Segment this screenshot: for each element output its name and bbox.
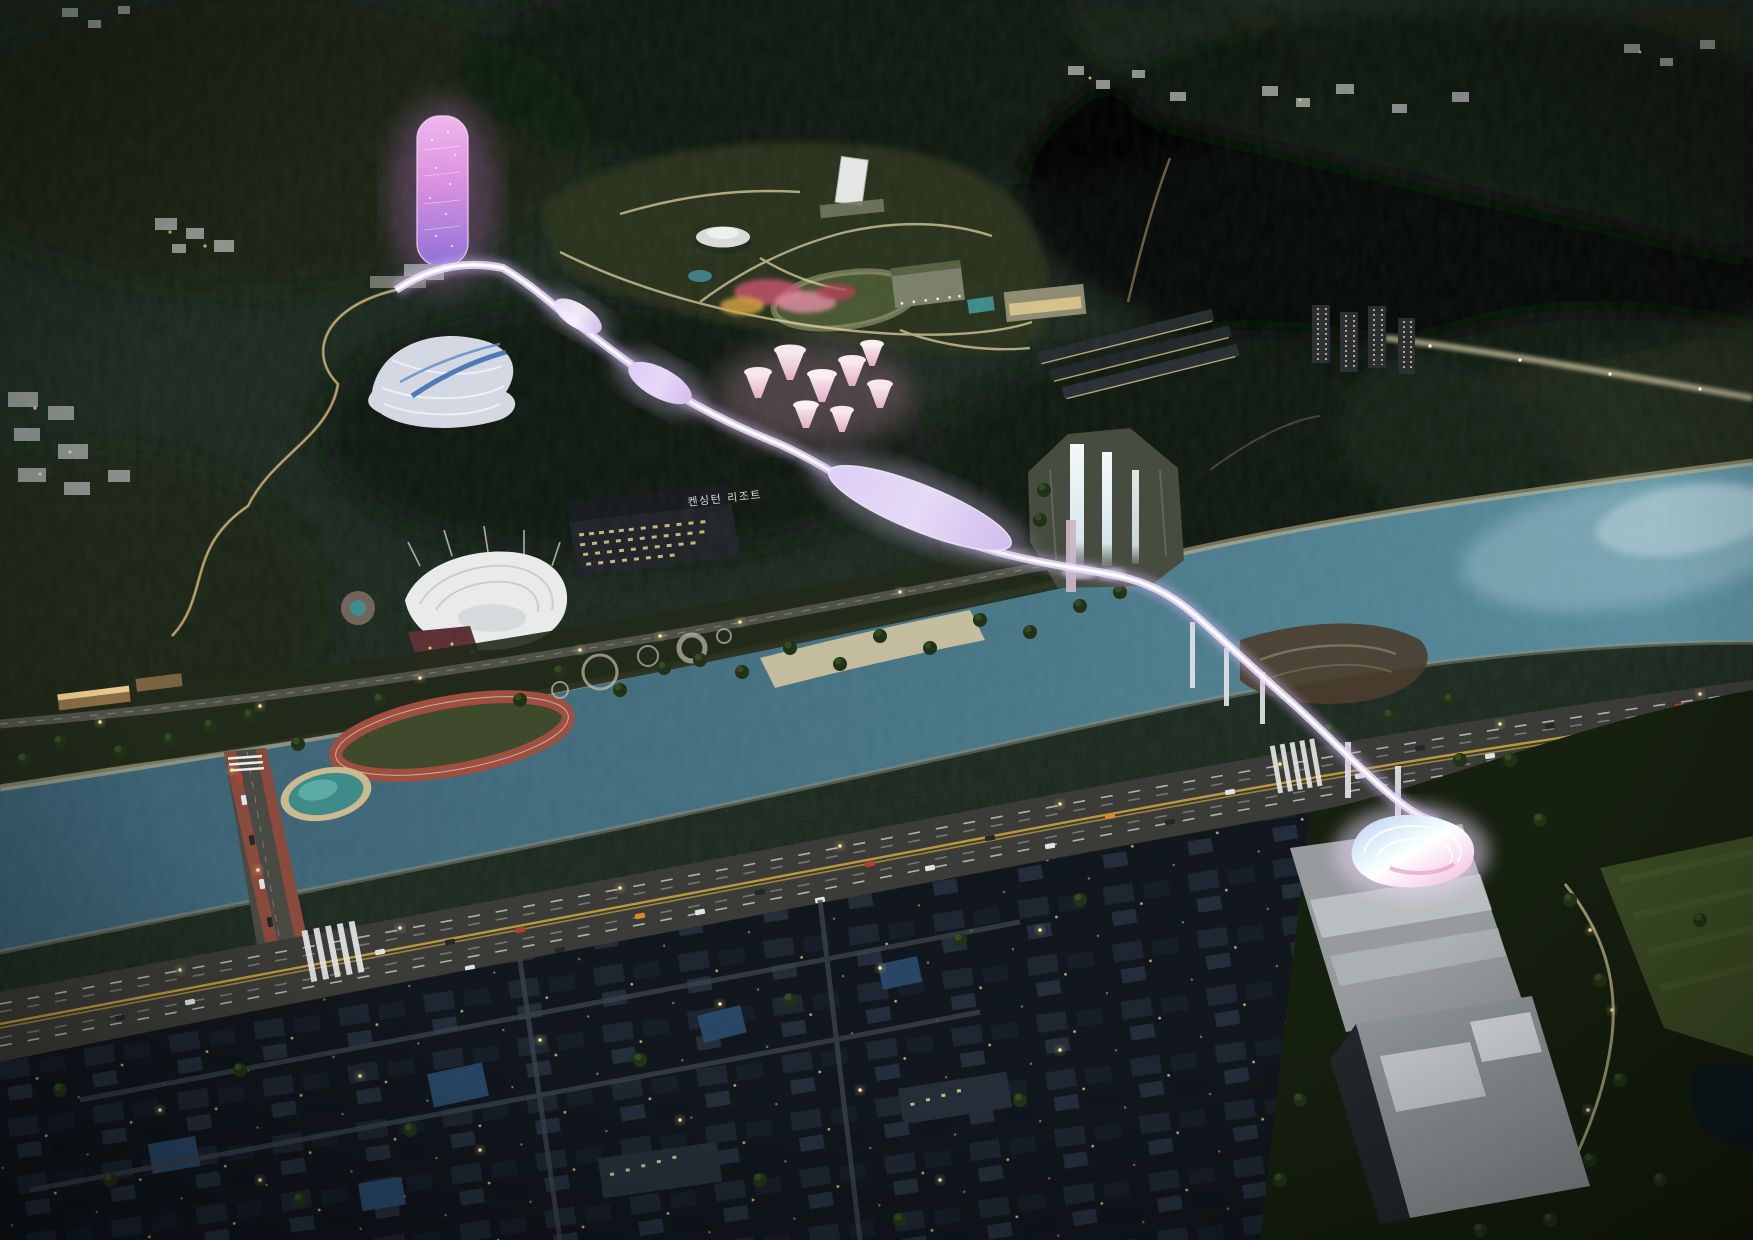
vignette — [0, 0, 1753, 1240]
render-canvas: 켄싱턴 리조트 — [0, 0, 1753, 1240]
aerial-render-image: 켄싱턴 리조트 — [0, 0, 1753, 1240]
